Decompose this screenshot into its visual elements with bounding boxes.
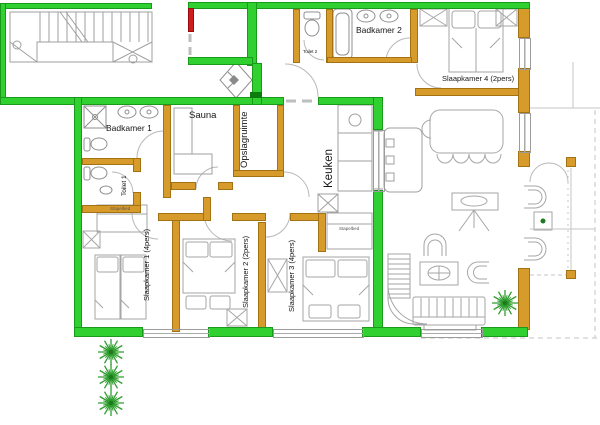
balcony-table-icon: [534, 212, 552, 230]
interior-wall: [171, 182, 196, 190]
exterior-wall: [373, 190, 383, 332]
exterior-wall: [373, 97, 383, 130]
interior-wall: [415, 88, 520, 96]
interior-wall: [203, 197, 211, 221]
kitchen-bar-icon: [384, 128, 422, 192]
exterior-wall: [188, 2, 530, 9]
interior-wall: [327, 57, 412, 63]
room-label-sauna: Sauna: [189, 111, 216, 121]
interior-wall: [218, 182, 233, 190]
interior-wall: [410, 9, 418, 63]
interior-wall: [326, 9, 333, 63]
sofa-icon: [413, 297, 485, 330]
room-label-badkamer-2: Badkamer 2: [356, 26, 402, 35]
toilet-2-icon: [304, 12, 320, 36]
interior-wall: [293, 9, 300, 63]
interior-wall: [518, 7, 530, 38]
balcony-outline: [421, 62, 600, 338]
wall-junction: [250, 92, 262, 98]
annotation-stapelbed-1: Stapelbed: [110, 207, 130, 212]
window: [273, 329, 364, 338]
annotation-stapelbed-2: Stapelbed: [339, 227, 359, 232]
exterior-wall: [74, 97, 82, 337]
balcony-post: [566, 270, 576, 279]
exterior-wall: [362, 327, 421, 337]
room-label-toilet-1: Toilet 1: [122, 163, 129, 209]
interior-wall: [172, 213, 180, 332]
room-label-slaapkamer-4: Slaapkamer 4 (2pers): [442, 75, 514, 83]
balcony-post: [566, 157, 576, 167]
window: [519, 38, 531, 70]
entrance-arrow-icon: [220, 62, 252, 98]
room-label-keuken: Keuken: [324, 138, 336, 198]
interior-stairs-icon: [388, 254, 427, 324]
exterior-wall: [74, 327, 143, 337]
double-bed-icon: [183, 8, 503, 321]
stairwell-stairs-icon: [10, 12, 152, 63]
window: [519, 113, 531, 153]
coffee-table-icon: [420, 262, 458, 285]
exterior-wall: [252, 63, 262, 105]
single-bed-icon: [95, 255, 146, 319]
interior-wall: [318, 213, 326, 252]
floor-plan: Badkamer 1 Toilet 1 Sauna Opslagruimte K…: [0, 0, 600, 425]
interior-wall: [277, 105, 284, 177]
room-label-slaapkamer-2: Slaapkamer 2 (2pers): [242, 230, 250, 314]
interior-wall: [232, 213, 266, 221]
exterior-wall: [0, 3, 152, 9]
balcony-chair-icon: [524, 186, 546, 260]
interior-wall: [158, 213, 204, 221]
armchair-icon: [424, 234, 489, 283]
room-label-badkamer-1: Badkamer 1: [106, 124, 152, 133]
plant-icon: [98, 290, 518, 416]
exterior-wall: [481, 327, 528, 337]
window: [143, 329, 210, 338]
room-label-slaapkamer-1: Slaapkamer 1 (4pers): [143, 220, 151, 310]
room-label-opslagruimte: Opslagruimte: [240, 106, 250, 174]
window: [421, 329, 483, 338]
window: [373, 130, 385, 192]
bathtub-icon: [333, 9, 352, 59]
exterior-wall: [0, 97, 284, 105]
interior-wall: [258, 222, 266, 332]
shower-icon: [84, 106, 106, 128]
dining-table-icon: [422, 110, 503, 163]
room-label-toilet-2: Toilet 2: [303, 50, 317, 55]
red-wall-segment: [188, 8, 194, 32]
interior-wall: [518, 268, 530, 330]
interior-wall: [163, 105, 171, 198]
interior-wall: [290, 213, 320, 221]
interior-wall: [518, 68, 530, 113]
exterior-wall: [208, 327, 273, 337]
interior-wall: [133, 158, 141, 172]
door-arcs: [112, 38, 568, 241]
exterior-wall: [188, 57, 253, 65]
desk-icon: [452, 193, 498, 231]
interior-wall: [518, 151, 530, 167]
room-label-slaapkamer-3: Slaapkamer 3 (4pers): [288, 228, 296, 324]
exterior-wall: [0, 3, 6, 100]
